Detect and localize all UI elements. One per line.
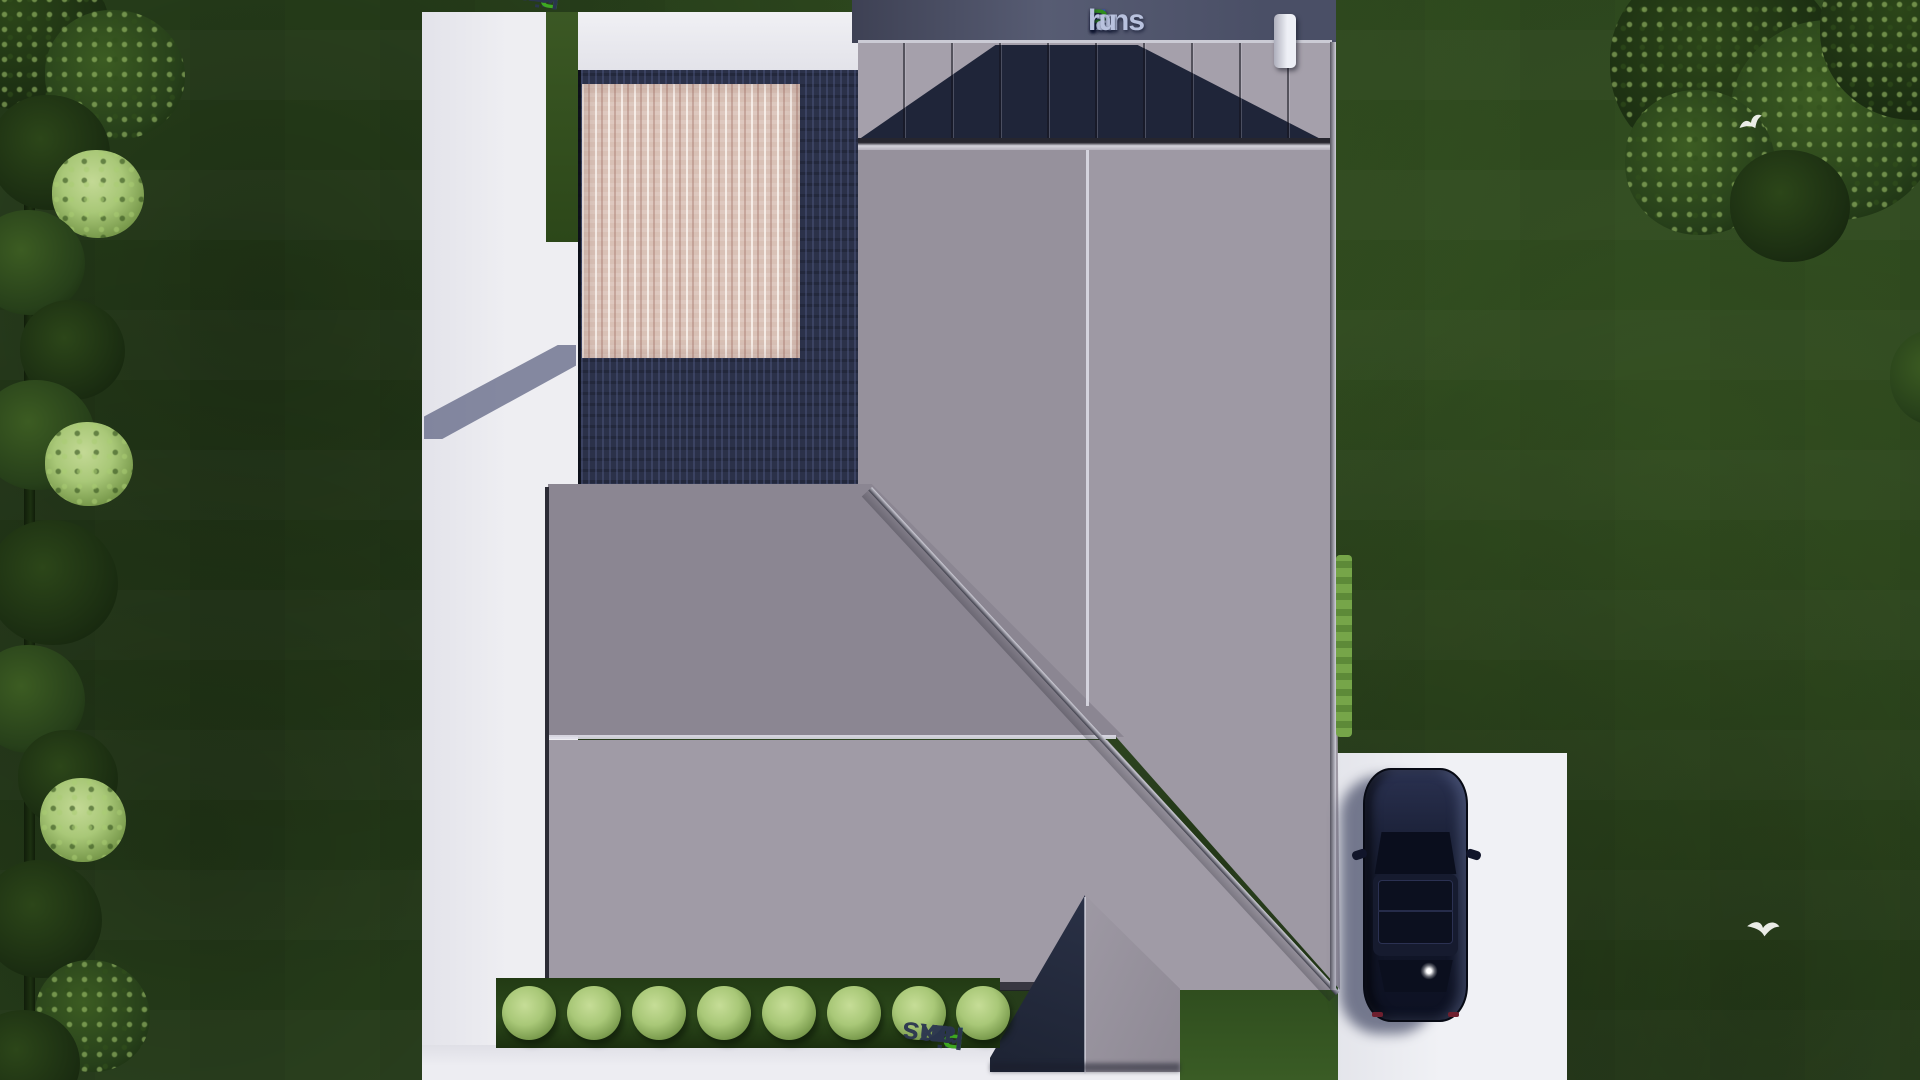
wood-terrace (582, 84, 800, 358)
roof-top-block (858, 40, 1332, 140)
roof-ridge-vertical (1086, 150, 1089, 706)
boxwood-bush (697, 986, 751, 1040)
chimney (1274, 14, 1296, 68)
boxwood-bush (632, 986, 686, 1040)
tree-row-left (0, 0, 200, 1080)
porch-ridge (1084, 897, 1086, 1074)
parked-car (1338, 758, 1498, 1058)
car-body (1363, 768, 1468, 1022)
aerial-render-stage: FixPlans.ru FixPlans.ru FixPlans.ru (0, 0, 1920, 1080)
car-rear-window (1375, 960, 1456, 992)
boxwood-bush (762, 986, 816, 1040)
tree (1890, 330, 1920, 425)
tree-canopy-top-right (1580, 0, 1920, 440)
car-windshield (1373, 832, 1458, 874)
car-sunroof (1378, 880, 1453, 944)
tree (0, 520, 118, 645)
car-taillight (1372, 1012, 1383, 1017)
bush (45, 422, 133, 506)
bush (40, 778, 126, 862)
porch-gable (990, 895, 1180, 1072)
boxwood-bush (827, 986, 881, 1040)
car-taillight (1448, 1012, 1459, 1017)
roof-ridge (548, 735, 1116, 739)
roof-edge-left (545, 487, 549, 984)
roof-edge-right (1330, 42, 1336, 990)
grass-strip (546, 12, 578, 242)
car-reflection (1420, 962, 1438, 980)
watermark-text: ru (931, 1017, 966, 1056)
hedge-strip (1336, 555, 1352, 737)
boxwood-bush (502, 986, 556, 1040)
porch-drop-shadow (990, 1063, 1180, 1072)
grass-patch (1180, 986, 1338, 1080)
roof-eave-band (858, 138, 1336, 151)
roof-seams (858, 43, 1332, 140)
car-sunroof-divider (1378, 910, 1453, 912)
logo-letter: ru (1088, 4, 1116, 38)
boxwood-bush (567, 986, 621, 1040)
tree (1730, 150, 1850, 262)
